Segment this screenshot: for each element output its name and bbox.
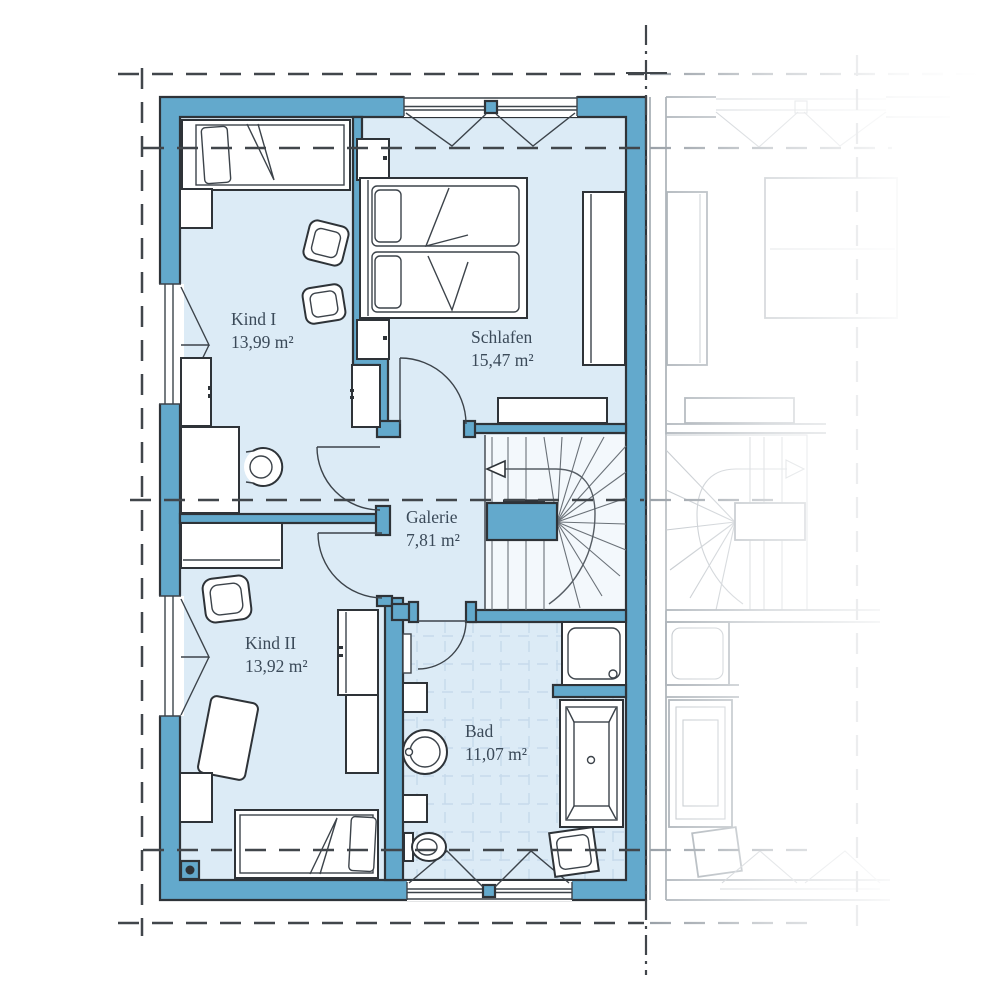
- room-area: 13,92 m²: [245, 655, 308, 678]
- shelf: [181, 523, 282, 568]
- room-name: Kind II: [245, 632, 308, 655]
- room-area: 15,47 m²: [471, 349, 534, 372]
- cushion: [302, 219, 350, 267]
- vanity-cabinet: [403, 683, 427, 712]
- sideboard: [498, 398, 607, 423]
- room-label-kind1: Kind I 13,99 m²: [231, 308, 294, 355]
- floorplan: Kind I 13,99 m² Schlafen 15,47 m² Galeri…: [0, 0, 1000, 1000]
- wardrobe: [338, 610, 378, 695]
- room-label-galerie: Galerie 7,81 m²: [406, 506, 460, 553]
- bath-mat: [549, 827, 599, 877]
- fade-overlay: [650, 0, 1000, 1000]
- cabinet: [180, 773, 212, 822]
- room-name: Galerie: [406, 506, 460, 529]
- chair: [201, 574, 252, 623]
- pillow: [201, 126, 231, 184]
- cushion: [301, 283, 346, 325]
- room-label-bad: Bad 11,07 m²: [465, 720, 527, 767]
- vanity-cabinet: [403, 795, 427, 822]
- room-label-schlafen: Schlafen 15,47 m²: [471, 326, 534, 373]
- shelf: [352, 365, 380, 427]
- stair-well: [487, 503, 557, 540]
- main-unit: [156, 95, 646, 901]
- wall-niche: [403, 634, 411, 673]
- floorplan-canvas: [0, 0, 1000, 1000]
- room-area: 13,99 m²: [231, 331, 294, 354]
- room-area: 7,81 m²: [406, 529, 460, 552]
- wardrobe: [346, 695, 378, 773]
- wardrobe: [583, 192, 625, 365]
- cabinet: [180, 189, 212, 228]
- pillow: [375, 190, 401, 242]
- pillow: [349, 816, 377, 871]
- wardrobe: [181, 358, 211, 426]
- desk-chair: [244, 448, 282, 486]
- room-name: Schlafen: [471, 326, 534, 349]
- room-name: Bad: [465, 720, 527, 743]
- room-name: Kind I: [231, 308, 294, 331]
- faucet: [406, 749, 413, 756]
- pillow: [375, 256, 401, 308]
- room-area: 11,07 m²: [465, 743, 527, 766]
- room-label-kind2: Kind II 13,92 m²: [245, 632, 308, 679]
